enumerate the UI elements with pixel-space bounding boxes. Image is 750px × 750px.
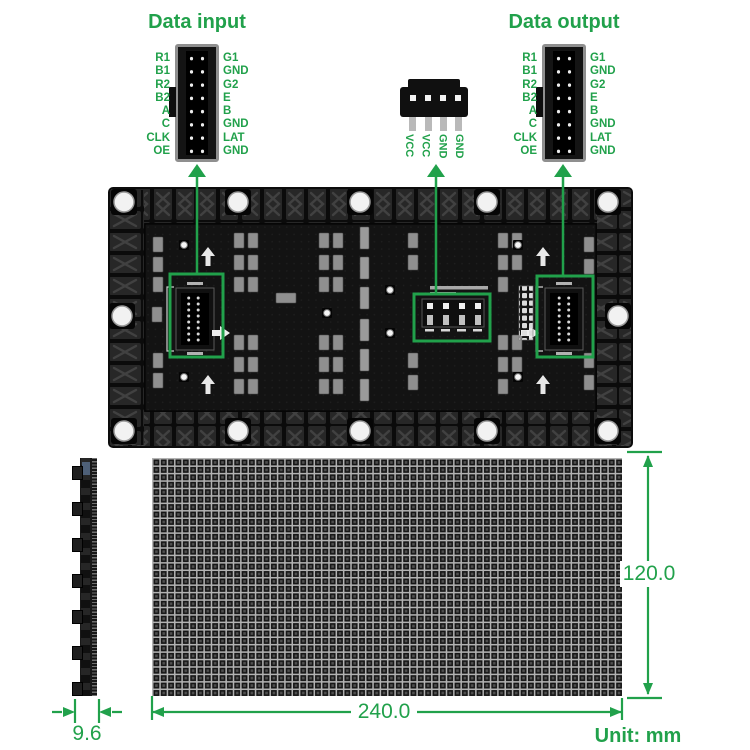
pcb-back-photo [108, 187, 633, 448]
magnet-hole [228, 192, 248, 212]
power-pin-hole [440, 95, 446, 101]
magnet-hole [477, 192, 497, 212]
connector-notch-icon [169, 87, 176, 117]
side-view-clip [72, 646, 83, 660]
pin-label: OE [118, 145, 170, 158]
pin-label: LAT [590, 132, 642, 145]
pin-label: A [118, 105, 170, 118]
ic-chip [248, 379, 258, 394]
pin-label: A [485, 105, 537, 118]
pin-label: C [485, 118, 537, 131]
side-view-clip [72, 682, 83, 696]
connector-pin-grid-icon [553, 52, 575, 158]
pin-label: G1 [223, 52, 275, 65]
ic-chip [248, 277, 258, 292]
height-dimension-label: 120.0 [620, 561, 678, 587]
magnet-hole [228, 421, 248, 441]
ic-chip [333, 277, 343, 292]
side-view-clip [72, 610, 83, 624]
data-output-title: Data output [499, 11, 629, 34]
led-dome [515, 374, 522, 381]
power-connector-leg [425, 117, 432, 131]
side-view-clip [72, 502, 83, 516]
ic-chip [248, 335, 258, 350]
side-view-glint [82, 462, 90, 475]
power-connector-diagram [400, 87, 468, 117]
power-connector-leg [440, 117, 447, 131]
power-connector-leg [455, 117, 462, 131]
magnet-hole [598, 421, 618, 441]
pin-label: GND [590, 65, 642, 78]
side-view-clip [72, 466, 83, 480]
magnet-hole [350, 421, 370, 441]
dimension-arrow-icon [643, 455, 653, 467]
ic-chip [153, 237, 163, 252]
led-dome [515, 242, 522, 249]
side-view-clip [72, 574, 83, 588]
ic-chip [584, 259, 594, 274]
connector-pin-grid-icon [186, 52, 208, 158]
ic-chip [333, 357, 343, 372]
led-dome [181, 242, 188, 249]
ic-chip [333, 379, 343, 394]
power-pin-hole [410, 95, 416, 101]
ic-chip [153, 373, 163, 388]
pin-label: R1 [118, 52, 170, 65]
ic-chip [319, 357, 329, 372]
magnet-hole [598, 192, 618, 212]
ic-chip [584, 353, 594, 368]
data-output-connector-diagram [542, 44, 586, 162]
led-dome [181, 374, 188, 381]
input-left-pin-labels: R1B1R2B2ACCLKOE [118, 52, 170, 158]
side-view-led-edge [92, 458, 97, 696]
pin-label: B [590, 105, 642, 118]
dimension-arrow-icon [63, 707, 75, 717]
magnet-hole [477, 421, 497, 441]
magnet-hole [112, 306, 132, 326]
ic-chip [153, 257, 163, 272]
ic-chip [276, 293, 296, 303]
led-dome [324, 310, 331, 317]
ic-chip [512, 255, 522, 270]
pin-label: GND [223, 65, 275, 78]
magnet-hole [114, 192, 134, 212]
ic-chip [498, 379, 508, 394]
pin-label: GND [223, 118, 275, 131]
pin-label: E [223, 92, 275, 105]
ic-chip [234, 233, 244, 248]
callout-arrow-up-icon [427, 164, 445, 177]
ic-chip [153, 353, 163, 368]
magnet-hole [608, 306, 628, 326]
led-matrix-front-view [152, 458, 622, 696]
ic-chip [234, 255, 244, 270]
ic-chip [319, 277, 329, 292]
ic-chip [153, 277, 163, 292]
ic-chip [333, 335, 343, 350]
ic-chip [498, 277, 508, 292]
pin-label: GND [223, 145, 275, 158]
ic-chip [360, 319, 369, 341]
thickness-dimension-label: 9.6 [63, 722, 111, 746]
ic-chip [512, 357, 522, 372]
pin-label: GND [590, 145, 642, 158]
ic-chip [408, 375, 418, 390]
ic-chip [234, 357, 244, 372]
power-pin-label: VCC [420, 134, 432, 168]
power-pin-hole [455, 95, 461, 101]
pin-label: B2 [485, 92, 537, 105]
led-matrix-spec-diagram: Data input Data output R1B1R2B2ACCLKOE G… [0, 0, 750, 750]
callout-arrow-up-icon [188, 164, 206, 177]
ic-chip [498, 357, 508, 372]
data-input-title: Data input [132, 11, 262, 34]
pin-label: C [118, 118, 170, 131]
led-dome [387, 330, 394, 337]
power-connector-leg [409, 117, 416, 131]
thickness-dimension [52, 699, 122, 723]
pin-label: LAT [223, 132, 275, 145]
ic-chip [319, 335, 329, 350]
input-right-pin-labels: G1GNDG2EBGNDLATGND [223, 52, 275, 158]
ic-chip [408, 353, 418, 368]
pin-label: G2 [223, 79, 275, 92]
ic-chip [319, 233, 329, 248]
ic-chip [319, 255, 329, 270]
ic-chip [333, 255, 343, 270]
magnet-hole [114, 421, 134, 441]
pin-label: B1 [485, 65, 537, 78]
ic-chip [248, 233, 258, 248]
power-pin-label: GND [453, 134, 465, 168]
pin-label: E [590, 92, 642, 105]
power-pin-hole [425, 95, 431, 101]
pin-label: B2 [118, 92, 170, 105]
pin-label: CLK [118, 132, 170, 145]
pin-label: B1 [118, 65, 170, 78]
magnet-hole [350, 192, 370, 212]
pin-label: G2 [590, 79, 642, 92]
dimension-arrow-icon [152, 707, 164, 717]
ic-chip [584, 237, 594, 252]
pin-label: GND [590, 118, 642, 131]
led-dome [387, 287, 394, 294]
ic-chip [498, 335, 508, 350]
connector-notch-icon [536, 87, 543, 117]
ic-chip [248, 255, 258, 270]
ic-chip [360, 287, 369, 309]
power-pin-labels: VCCVCCGNDGND [400, 134, 468, 168]
pin-label: CLK [485, 132, 537, 145]
ic-chip [319, 379, 329, 394]
output-left-pin-labels: R1B1R2B2ACCLKOE [485, 52, 537, 158]
pin-label: B [223, 105, 275, 118]
ic-chip [234, 277, 244, 292]
power-pin-label: GND [436, 134, 448, 168]
ic-chip [584, 375, 594, 390]
output-right-pin-labels: G1GNDG2EBGNDLATGND [590, 52, 642, 158]
panel-side-view [72, 458, 100, 696]
ic-chip [248, 357, 258, 372]
unit-label: Unit: mm [583, 725, 693, 748]
ic-chip [333, 233, 343, 248]
side-view-clip [72, 538, 83, 552]
callout-arrow-up-icon [554, 164, 572, 177]
ic-chip [152, 307, 162, 322]
power-pin-label: VCC [403, 134, 415, 168]
dimension-arrow-icon [643, 683, 653, 695]
pin-label: R2 [485, 79, 537, 92]
ic-chip [234, 335, 244, 350]
data-input-connector-diagram [175, 44, 219, 162]
ic-chip [360, 257, 369, 279]
ic-chip [234, 379, 244, 394]
dimension-arrow-icon [99, 707, 111, 717]
pin-label: G1 [590, 52, 642, 65]
dimension-arrow-icon [610, 707, 622, 717]
pin-label: R1 [485, 52, 537, 65]
ic-chip [360, 349, 369, 371]
ic-chip [360, 379, 369, 401]
ic-chip [408, 255, 418, 270]
ic-chip [498, 233, 508, 248]
width-dimension-label: 240.0 [351, 699, 417, 724]
ic-chip [360, 227, 369, 249]
ic-chip [498, 255, 508, 270]
ic-chip [408, 233, 418, 248]
pin-label: R2 [118, 79, 170, 92]
pin-label: OE [485, 145, 537, 158]
